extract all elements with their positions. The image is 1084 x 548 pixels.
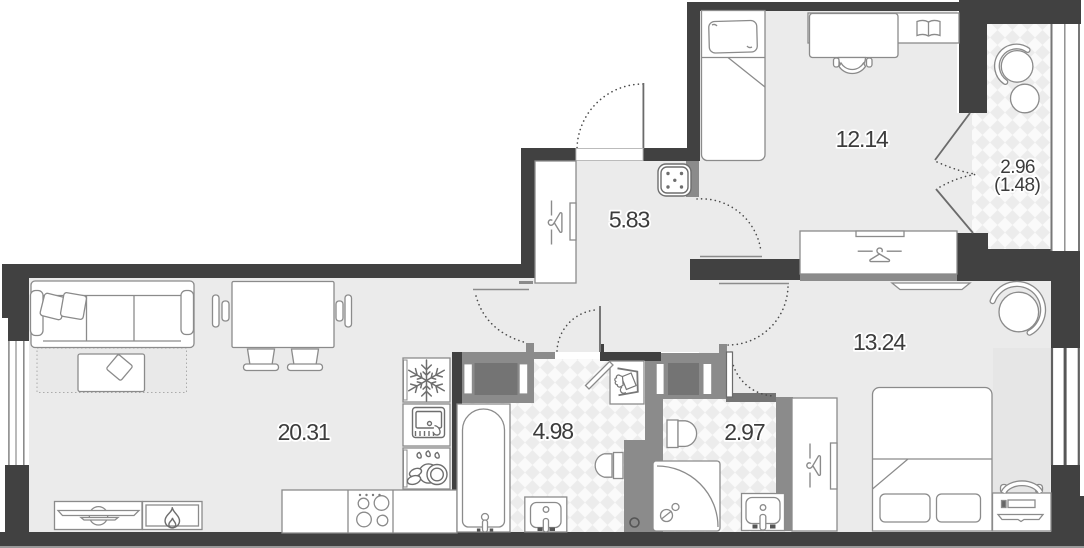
svg-text:20.31: 20.31 [278, 419, 330, 445]
svg-text:4.98: 4.98 [533, 418, 574, 444]
svg-text:12.14: 12.14 [836, 126, 889, 152]
svg-text:5.83: 5.83 [609, 207, 650, 233]
svg-text:2.97: 2.97 [724, 419, 765, 445]
svg-text:13.24: 13.24 [853, 329, 906, 355]
svg-text:(1.48): (1.48) [994, 175, 1040, 196]
